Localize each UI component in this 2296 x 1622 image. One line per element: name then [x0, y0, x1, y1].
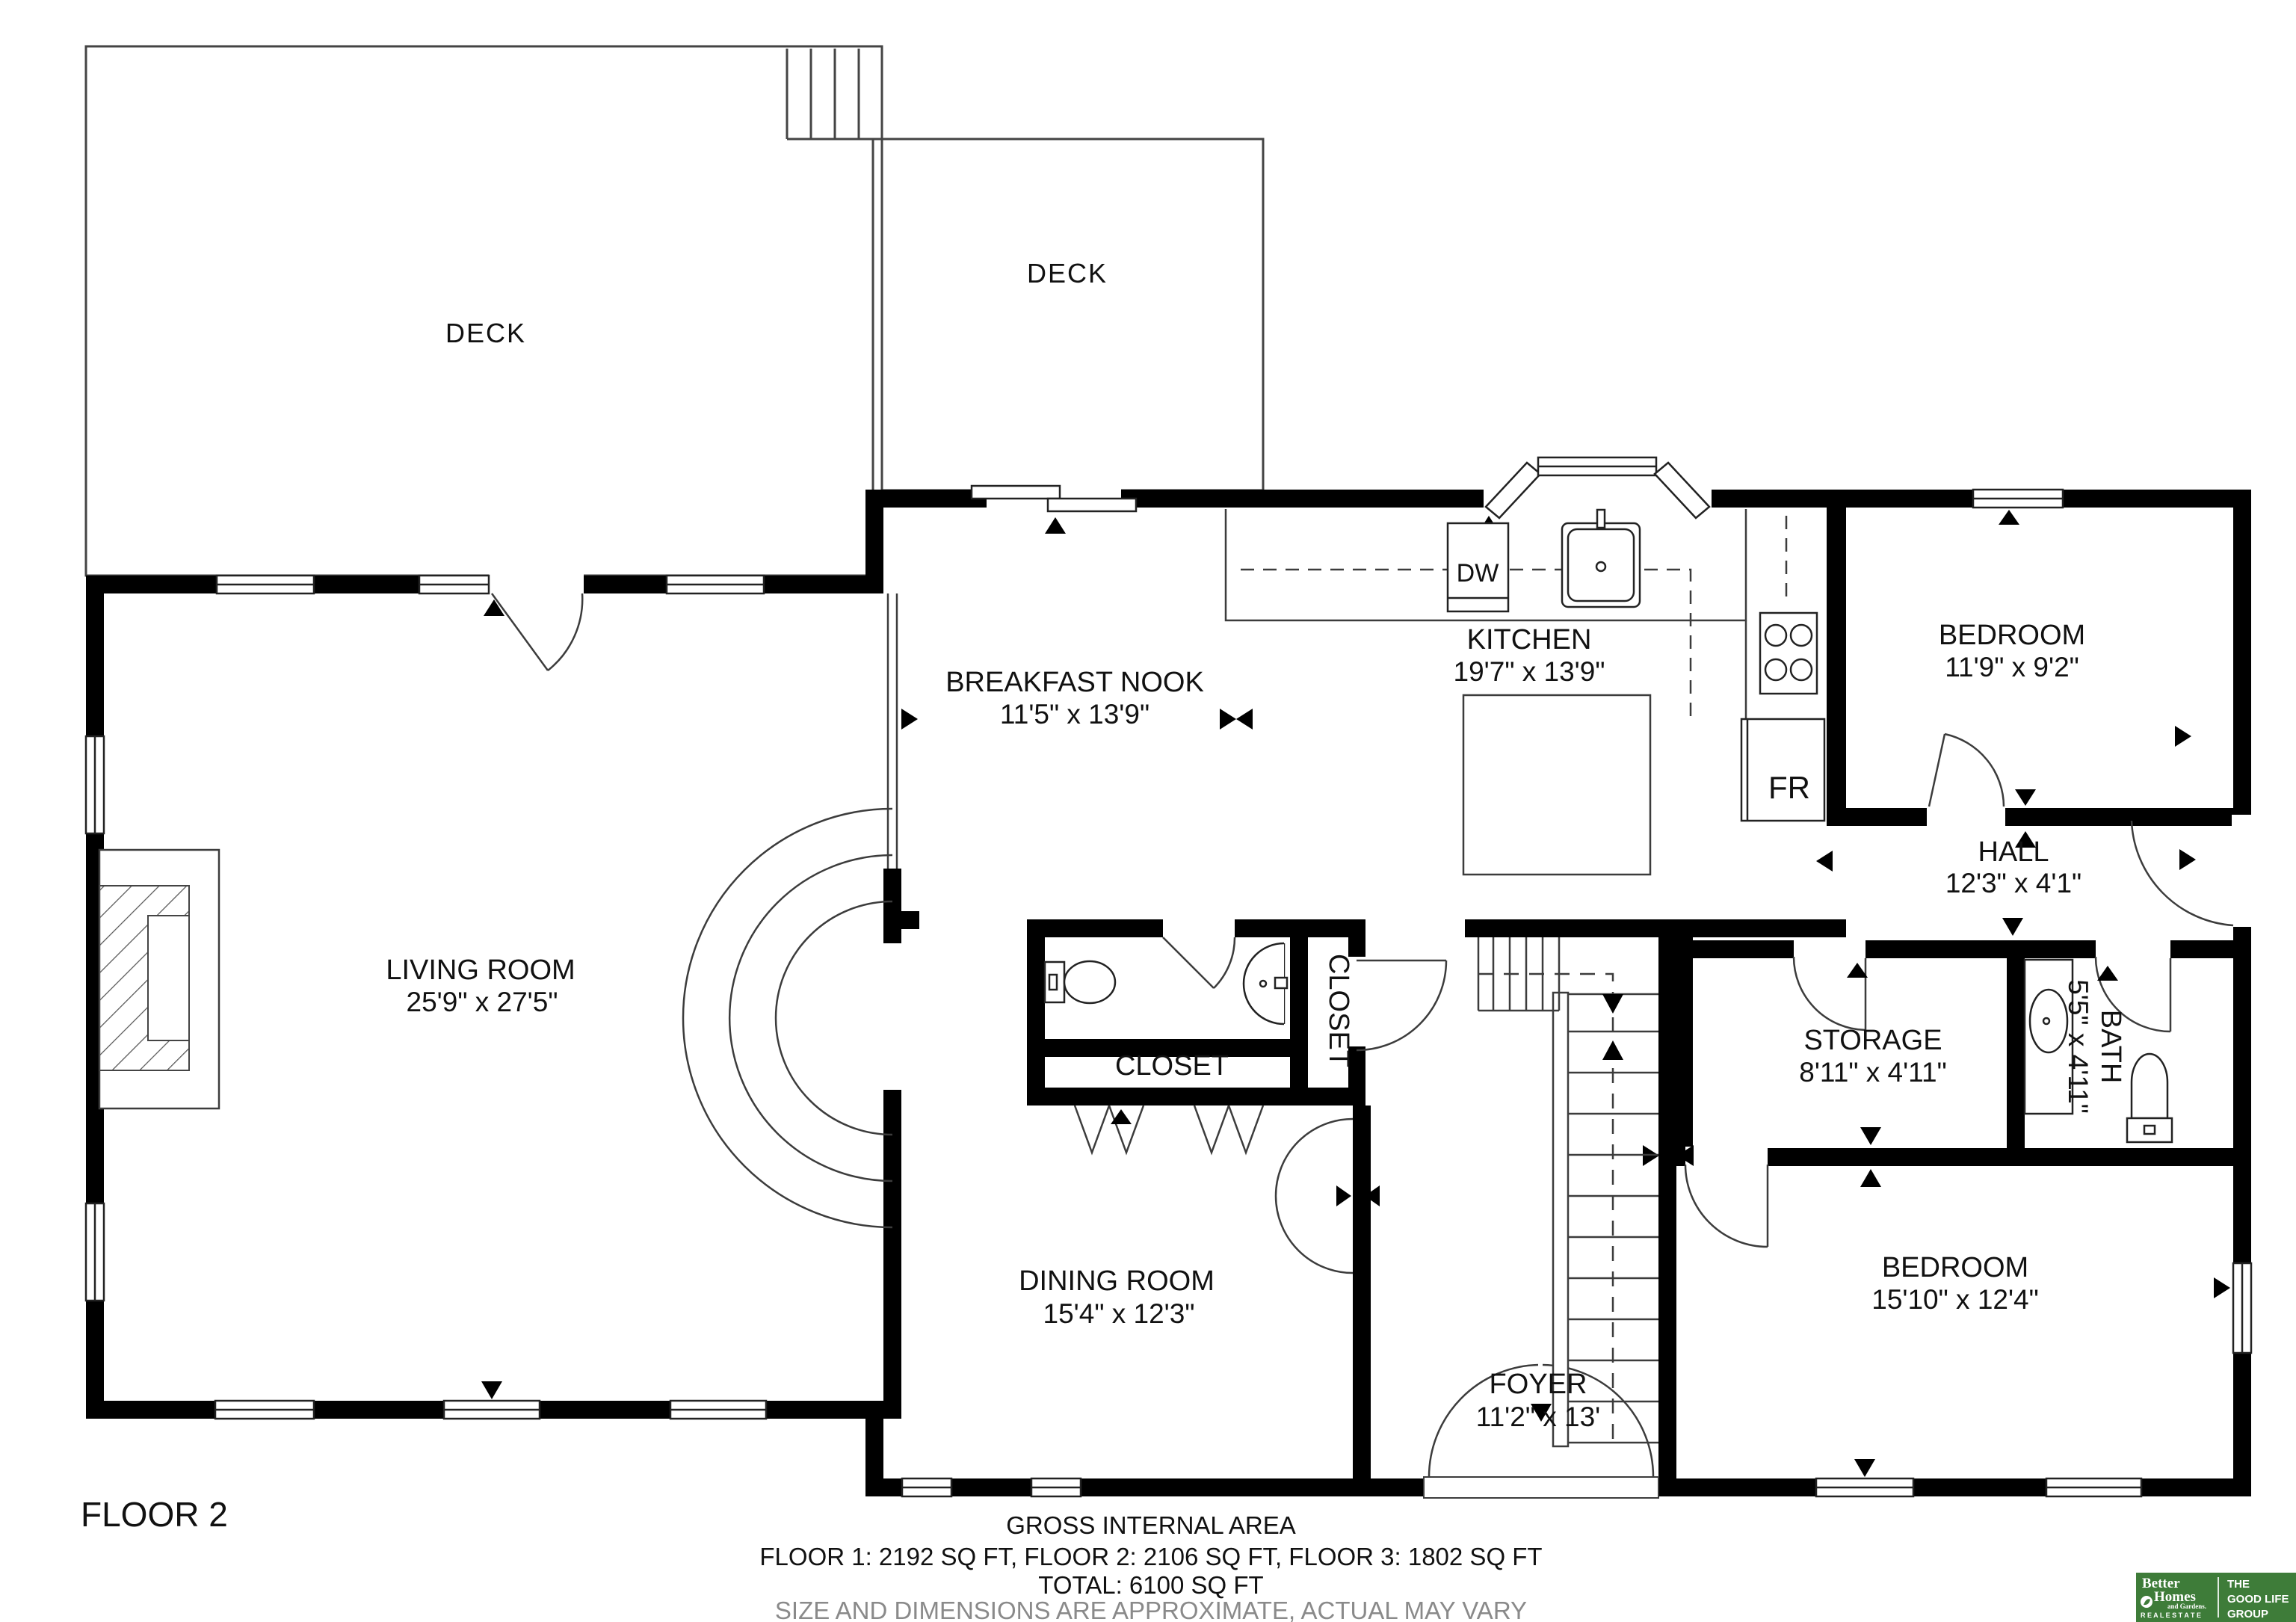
label-hall: HALL	[1978, 836, 2049, 868]
kitchen-sink	[1562, 510, 1640, 607]
window	[902, 1478, 951, 1496]
dims-breakfast-nook: 11'5" x 13'9"	[1000, 699, 1149, 730]
footer-disclaimer: SIZE AND DIMENSIONS ARE APPROXIMATE, ACT…	[775, 1597, 1527, 1622]
logo-group-line3: GROUP	[2227, 1608, 2268, 1621]
footer-area-title: GROSS INTERNAL AREA	[1006, 1511, 1296, 1539]
archway-arcs	[683, 593, 897, 1227]
dims-hall: 12'3" x 4'1"	[1945, 868, 2081, 898]
dims-dining-room: 15'4" x 12'3"	[1043, 1298, 1195, 1329]
dims-kitchen: 19'7" x 13'9"	[1454, 656, 1605, 687]
window	[1816, 1478, 1913, 1496]
window	[1973, 490, 2063, 508]
label-bath: BATH	[2095, 1010, 2126, 1084]
window	[2233, 1263, 2251, 1353]
window	[670, 1401, 766, 1419]
dims-bedroom-lower: 15'10" x 12'4"	[1871, 1284, 2039, 1315]
deck-right-outline	[882, 139, 1263, 490]
door-half-bath	[1163, 937, 1235, 988]
window	[215, 1401, 314, 1419]
kitchen-island	[1463, 695, 1650, 875]
dims-living-room: 25'9" x 27'5"	[407, 987, 558, 1017]
window	[86, 1203, 104, 1301]
floor-label: FLOOR 2	[81, 1495, 228, 1534]
dims-bath: 5'5" x 4'11"	[2063, 979, 2093, 1114]
door-bedroom-lower	[1685, 1165, 1768, 1247]
window	[86, 736, 104, 833]
window	[1031, 1478, 1081, 1496]
label-bedroom-lower: BEDROOM	[1882, 1252, 2028, 1283]
label-bedroom-upper: BEDROOM	[1939, 620, 2085, 651]
stove	[1760, 613, 1817, 694]
door-bedroom-upper	[1929, 734, 2004, 807]
label-deck-left: DECK	[445, 318, 526, 348]
label-breakfast-nook: BREAKFAST NOOK	[945, 667, 1204, 698]
label-closet-side: CLOSET	[1323, 954, 1354, 1067]
bifold-doors-closet	[1075, 1106, 1263, 1153]
label-kitchen: KITCHEN	[1467, 624, 1592, 656]
label-closet-hall: CLOSET	[1115, 1050, 1229, 1082]
logo-brand-line4: R E A L E S T A T E	[2141, 1612, 2201, 1619]
half-bath-toilet	[1045, 961, 1115, 1003]
logo-brand-line3: and Gardens.	[2167, 1603, 2206, 1610]
window	[217, 576, 314, 593]
label-deck-right: DECK	[1027, 258, 1108, 289]
footer-area-breakdown: FLOOR 1: 2192 SQ FT, FLOOR 2: 2106 SQ FT…	[759, 1543, 1542, 1570]
logo-group-line2: GOOD LIFE	[2227, 1593, 2289, 1606]
door-living-deck	[492, 593, 582, 670]
floorplan-canvas: DECK DECK BREAKFAST NOOK 11'5" x 13'9" K…	[0, 0, 2296, 1622]
label-dishwasher: DW	[1457, 559, 1499, 588]
deck-left-outline	[86, 46, 882, 576]
label-dining-room: DINING ROOM	[1019, 1265, 1215, 1297]
footer-area-total: TOTAL: 6100 SQ FT	[1038, 1571, 1263, 1599]
logo-group-line1: THE	[2227, 1578, 2250, 1591]
window	[667, 576, 764, 593]
half-bath-sink	[1244, 943, 1287, 1024]
floorplan-page: DECK DECK BREAKFAST NOOK 11'5" x 13'9" K…	[0, 0, 2296, 1622]
label-foyer: FOYER	[1490, 1369, 1587, 1400]
window	[419, 576, 489, 593]
bath-toilet	[2127, 1054, 2172, 1142]
label-living-room: LIVING ROOM	[386, 955, 575, 986]
door-closet-side	[1357, 960, 1446, 1050]
foyer-entry-sill	[1424, 1477, 1658, 1498]
label-fridge: FR	[1768, 770, 1810, 805]
door-hall-right	[2132, 821, 2233, 925]
dims-bedroom-upper: 11'9" x 9'2"	[1945, 652, 2079, 682]
dims-foyer: 11'2" x 13'	[1476, 1401, 1600, 1432]
window	[2046, 1478, 2141, 1496]
fireplace	[99, 850, 219, 1108]
window	[444, 1401, 540, 1419]
brand-logo: Better Homes and Gardens. R E A L E S T …	[2136, 1573, 2296, 1622]
label-storage: STORAGE	[1803, 1025, 1942, 1056]
dims-storage: 8'11" x 4'11"	[1799, 1057, 1946, 1088]
